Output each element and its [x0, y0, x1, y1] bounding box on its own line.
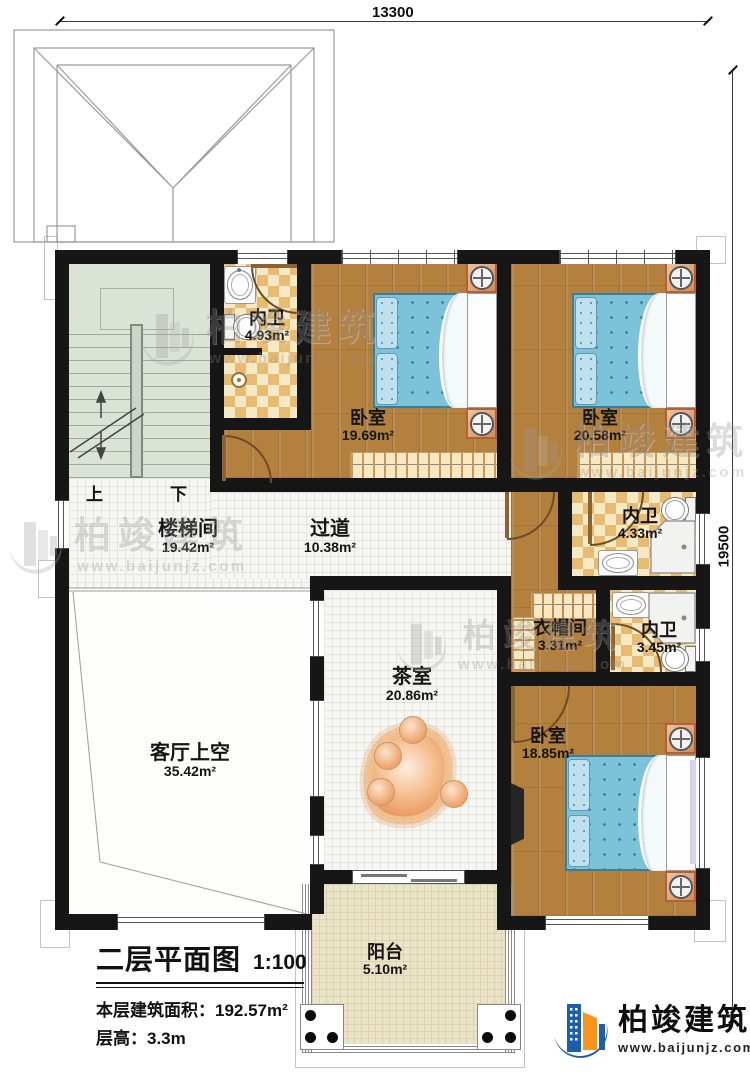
bed-bedroom1: [373, 293, 497, 408]
room-label-cloakroom: 衣帽间3.31m²: [533, 618, 587, 654]
logo-url-text: www.baijunjz.com: [618, 1040, 750, 1055]
wardrobe-bedroom2: [577, 452, 698, 479]
half-wall: [224, 348, 262, 355]
floor-height-value: 3.3m: [147, 1029, 186, 1048]
bed-bedroom3: [565, 755, 696, 871]
bed-bedroom2: [572, 293, 696, 408]
nightstand: [665, 723, 696, 754]
tv-bedroom3: [511, 783, 524, 845]
window: [237, 250, 288, 264]
stool: [374, 742, 402, 770]
wall-cloak-bath3: [596, 590, 610, 672]
plan-title: 二层平面图: [96, 938, 241, 978]
room-label-bath3: 内卫3.45m²: [637, 620, 681, 656]
nightstand: [665, 262, 696, 293]
room-label-bath2: 内卫4.33m²: [618, 506, 662, 542]
plan-scale: 1:100: [253, 951, 307, 975]
window: [545, 916, 649, 930]
corridor-floor: [210, 492, 511, 578]
room-label-bedroom3: 卧室18.85m²: [522, 726, 574, 762]
lamp-icon: [669, 875, 693, 899]
window: [696, 513, 710, 565]
wall-exterior-left: [55, 250, 69, 930]
stair-down-label: 下: [170, 480, 187, 505]
stair-up-label: 上: [86, 480, 103, 505]
floor-area-value: 192.57m²: [215, 1001, 288, 1020]
wall-bath1-bedroom1: [297, 264, 311, 425]
wall-tearoom-right: [497, 576, 511, 916]
window: [696, 757, 710, 869]
dim-tick: [728, 65, 738, 75]
window: [55, 500, 69, 549]
lamp-icon: [669, 412, 693, 436]
dim-line-top: [60, 21, 708, 22]
room-label-balcony: 阳台5.10m²: [363, 942, 407, 978]
room-label-stairhall: 楼梯间19.42m²: [158, 518, 218, 556]
window: [341, 250, 458, 264]
nightstand: [466, 408, 497, 439]
floor-area-label: 本层建筑面积：: [96, 1001, 215, 1020]
room-label-bedroom1: 卧室19.69m²: [342, 408, 394, 444]
wall-corridor-top: [210, 478, 710, 492]
stair-break-line: [62, 390, 152, 460]
wardrobe-bedroom1: [350, 452, 499, 479]
wall-bath2-bottom: [558, 576, 710, 590]
sink-icon: [598, 550, 638, 576]
lamp-icon: [669, 266, 693, 290]
window-interior: [310, 835, 324, 865]
title-block: 二层平面图 1:100 本层建筑面积：192.57m² 层高：3.3m: [96, 938, 307, 1049]
door-leaf: [588, 492, 592, 544]
door-leaf: [611, 623, 615, 670]
lamp-icon: [470, 266, 494, 290]
balcony-column-right: [477, 1004, 521, 1050]
stool: [367, 778, 395, 806]
sink-icon: [612, 592, 650, 618]
dim-top-label: 13300: [372, 4, 414, 21]
window: [117, 914, 265, 930]
room-label-corridor: 过道10.38m²: [304, 518, 356, 556]
nightstand: [665, 408, 696, 439]
wall-bath1-bottom: [210, 418, 311, 430]
lamp-icon: [669, 727, 693, 751]
window: [696, 628, 710, 662]
title-underline: [96, 982, 304, 988]
sliding-door: [352, 870, 465, 884]
wall-hall-bath2: [558, 488, 572, 583]
clothes-rack-left: [513, 617, 535, 672]
wall-bedroom1-bedroom2: [497, 250, 511, 492]
logo-building-icon: [550, 998, 610, 1062]
stool: [440, 780, 468, 808]
nightstand: [665, 871, 696, 902]
floor-height-label: 层高：: [96, 1029, 147, 1048]
door-leaf: [505, 492, 509, 538]
roof-outline: [10, 26, 340, 246]
wall-tearoom-top: [310, 576, 497, 590]
room-label-bath1: 内卫4.93m²: [245, 308, 289, 344]
window-interior: [310, 700, 324, 797]
window: [559, 250, 676, 264]
toilet-icon: [659, 495, 696, 523]
wall-bedroom3-top: [497, 672, 710, 686]
door-leaf: [222, 435, 226, 481]
room-label-tearoom: 茶室20.86m²: [386, 666, 438, 704]
logo-brand-text: 柏竣建筑: [618, 1006, 750, 1036]
window-interior: [310, 600, 324, 657]
room-label-livingvoid: 客厅上空35.42m²: [150, 742, 230, 780]
room-label-bedroom2: 卧室20.58m²: [574, 408, 626, 444]
lamp-icon: [470, 412, 494, 436]
brand-logo: 柏竣建筑 www.baijunjz.com: [550, 998, 750, 1062]
nightstand: [466, 262, 497, 293]
door-leaf: [511, 686, 515, 741]
floor-plan: 13300 19500 上 下: [0, 0, 750, 1072]
floor-drain-icon: [231, 372, 247, 388]
door-leaf: [251, 264, 297, 268]
dim-right-label: 19500: [715, 526, 732, 568]
stool: [399, 716, 427, 744]
